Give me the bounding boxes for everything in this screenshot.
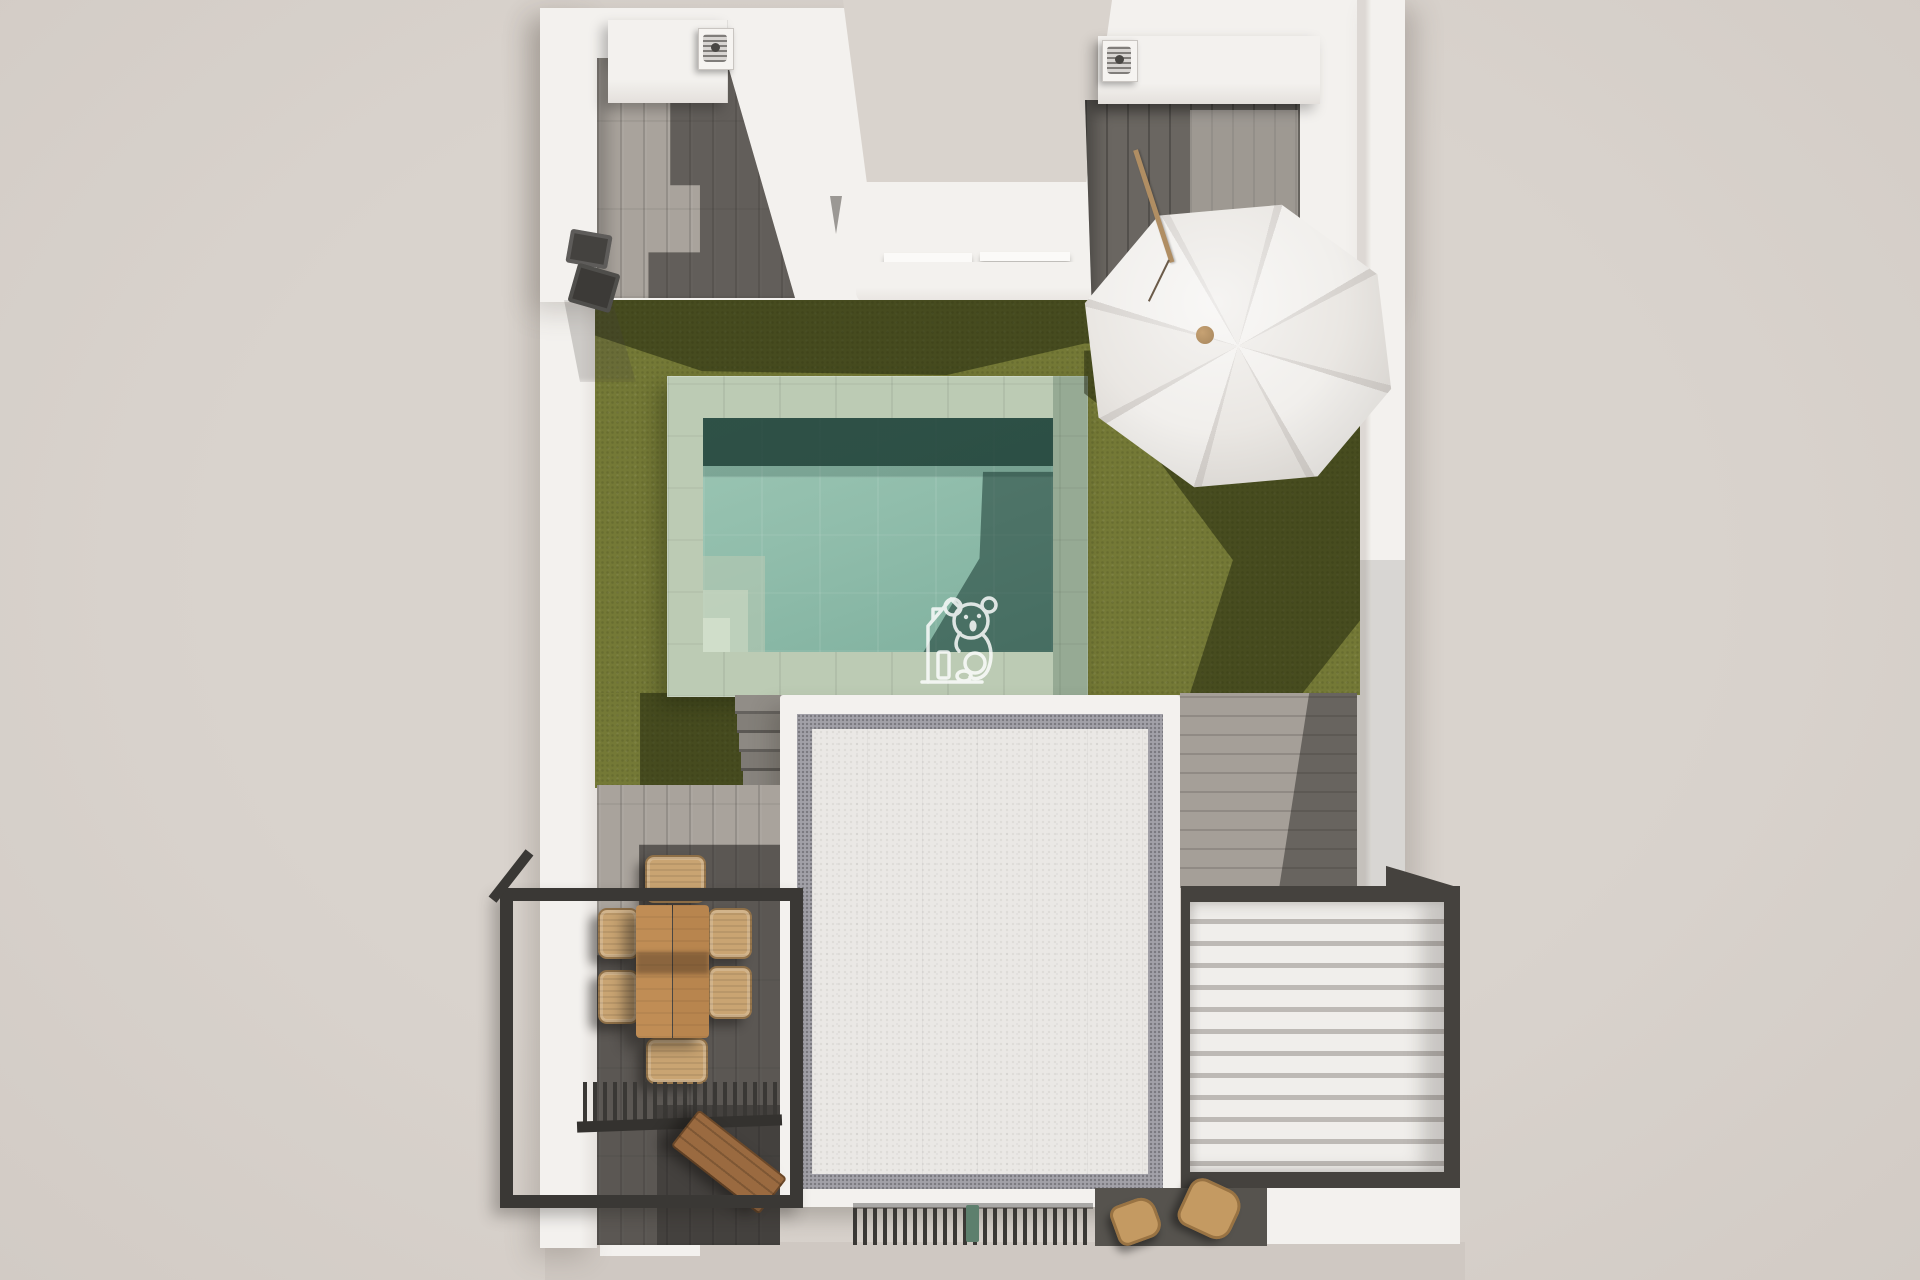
right-deck bbox=[1180, 693, 1357, 888]
terrace-parapet-front bbox=[856, 262, 1096, 304]
gravel-roof bbox=[780, 695, 1180, 1207]
pool-coping-right-shade bbox=[1053, 376, 1088, 697]
ac-unit-left bbox=[698, 28, 734, 70]
ac-fan-hub-left bbox=[711, 43, 720, 52]
pergola-frame-left bbox=[1181, 886, 1190, 1188]
wall-bracket-upper bbox=[565, 229, 612, 270]
pool bbox=[667, 376, 1088, 697]
terrace-railing bbox=[500, 888, 803, 1208]
ac-fan-hub-right bbox=[1115, 55, 1124, 64]
gravel-roof-fill bbox=[812, 729, 1148, 1174]
render-canvas bbox=[0, 0, 1920, 1280]
terrace-spike-left bbox=[830, 196, 842, 234]
pergola-frame-right bbox=[1444, 886, 1460, 1188]
ground-wall-bottom-right bbox=[1240, 1188, 1460, 1244]
right-parapet-shadow bbox=[1357, 560, 1405, 890]
pool-step-3 bbox=[703, 618, 730, 652]
pergola-louvers bbox=[1190, 902, 1444, 1172]
courtyard-gap bbox=[835, 0, 1120, 192]
parasol-finial-knob bbox=[1196, 326, 1214, 344]
louvered-pergola bbox=[1181, 862, 1460, 1188]
pergola-frame-top bbox=[1181, 886, 1460, 902]
pergola-corner-perspective bbox=[1386, 862, 1460, 888]
pool-water-top-shadow bbox=[703, 418, 1053, 478]
koala-house-watermark-icon bbox=[918, 588, 1010, 690]
right-deck-shadow bbox=[1180, 693, 1357, 888]
balustrade-glass-left bbox=[884, 253, 972, 262]
green-planter bbox=[966, 1205, 979, 1242]
ac-unit-right bbox=[1102, 40, 1138, 82]
balustrade-glass-right bbox=[980, 252, 1070, 261]
